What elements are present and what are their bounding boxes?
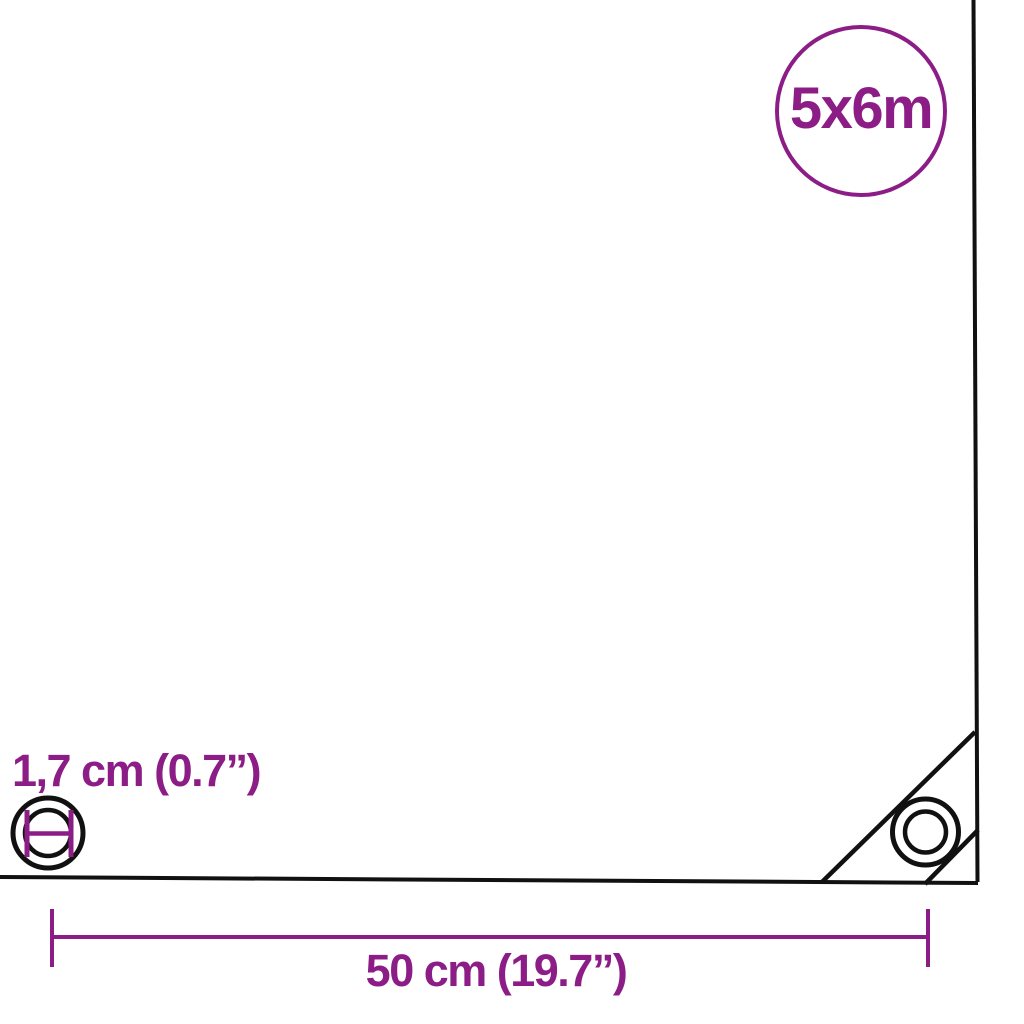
size-badge-label: 5x6m <box>790 80 932 142</box>
size-badge: 5x6m <box>775 25 947 197</box>
eyelet-right-icon <box>893 799 959 865</box>
eyelet-spacing-label: 50 cm (19.7”) <box>350 948 642 993</box>
product-size-diagram: 5x6m 1,7 cm (0.7”) 50 cm (19.7”) <box>0 0 1024 1024</box>
eyelet-diameter-label: 1,7 cm (0.7”) <box>12 748 260 793</box>
